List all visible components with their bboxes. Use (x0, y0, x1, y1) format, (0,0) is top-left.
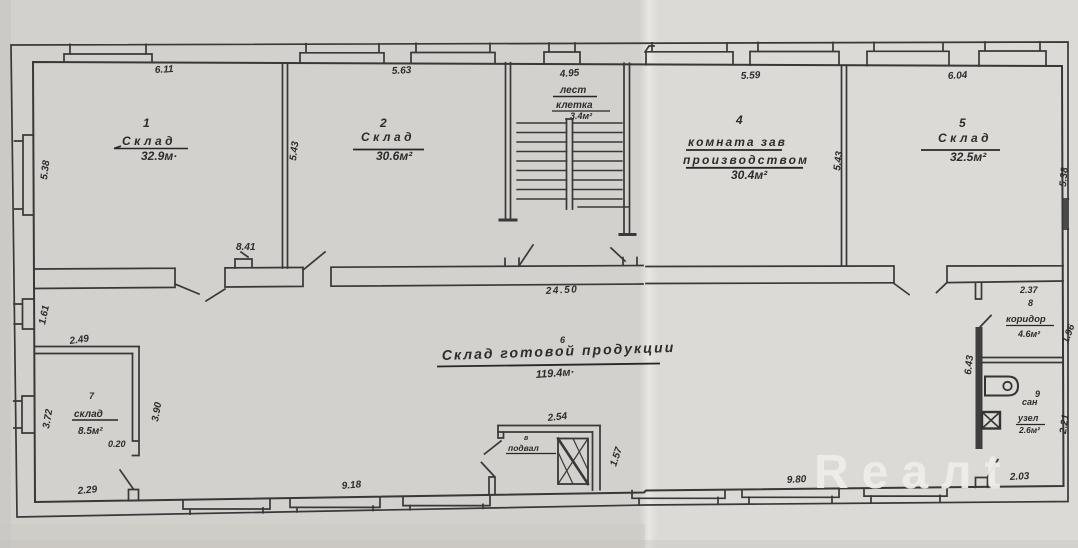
svg-text:5.38: 5.38 (1058, 166, 1071, 187)
svg-text:6.43: 6.43 (963, 354, 976, 375)
svg-text:3.4м²: 3.4м² (570, 111, 593, 121)
svg-text:2.54: 2.54 (546, 411, 568, 424)
svg-text:8: 8 (1028, 298, 1033, 308)
svg-text:5.63: 5.63 (392, 65, 412, 77)
svg-text:склад: склад (74, 409, 103, 420)
svg-text:30.6м²: 30.6м² (376, 149, 413, 163)
svg-text:2.6м²: 2.6м² (1018, 425, 1041, 435)
svg-text:6.11: 6.11 (155, 64, 175, 76)
svg-text:узел: узел (1017, 413, 1039, 423)
svg-text:5.59: 5.59 (741, 70, 761, 82)
svg-text:4.6м²: 4.6м² (1017, 329, 1041, 339)
svg-text:Reaлt: Reaлt (814, 446, 1014, 499)
svg-text:5: 5 (959, 116, 966, 130)
svg-text:4: 4 (735, 113, 743, 127)
svg-text:комната зав: комната зав (688, 135, 787, 149)
svg-text:сан: сан (1022, 397, 1038, 407)
svg-text:30.4м²: 30.4м² (731, 168, 768, 182)
svg-text:Склад: Склад (361, 130, 415, 144)
svg-text:коридор: коридор (1006, 314, 1046, 325)
svg-text:2.37: 2.37 (1019, 285, 1039, 295)
svg-text:9.80: 9.80 (787, 474, 807, 486)
svg-text:2: 2 (379, 116, 387, 130)
svg-text:8.5м²: 8.5м² (78, 426, 103, 437)
svg-text:2.03: 2.03 (1009, 471, 1030, 483)
svg-text:Склад: Склад (122, 134, 176, 148)
svg-text:4.95: 4.95 (558, 68, 580, 80)
svg-text:9.18: 9.18 (341, 479, 362, 492)
svg-text:лест: лест (559, 85, 586, 96)
svg-text:8.41: 8.41 (236, 242, 256, 253)
svg-text:32.9м·: 32.9м· (141, 149, 177, 163)
svg-text:Склад: Склад (938, 131, 992, 145)
svg-text:2.29: 2.29 (76, 484, 98, 497)
svg-text:24.50: 24.50 (545, 284, 579, 297)
svg-text:32.5м²: 32.5м² (950, 150, 987, 164)
svg-text:1: 1 (143, 116, 150, 130)
svg-text:производством: производством (683, 153, 809, 167)
svg-text:0.20: 0.20 (108, 439, 126, 449)
svg-text:клетка: клетка (556, 100, 593, 111)
svg-text:подвал: подвал (508, 443, 539, 453)
svg-text:6.04: 6.04 (948, 70, 968, 82)
